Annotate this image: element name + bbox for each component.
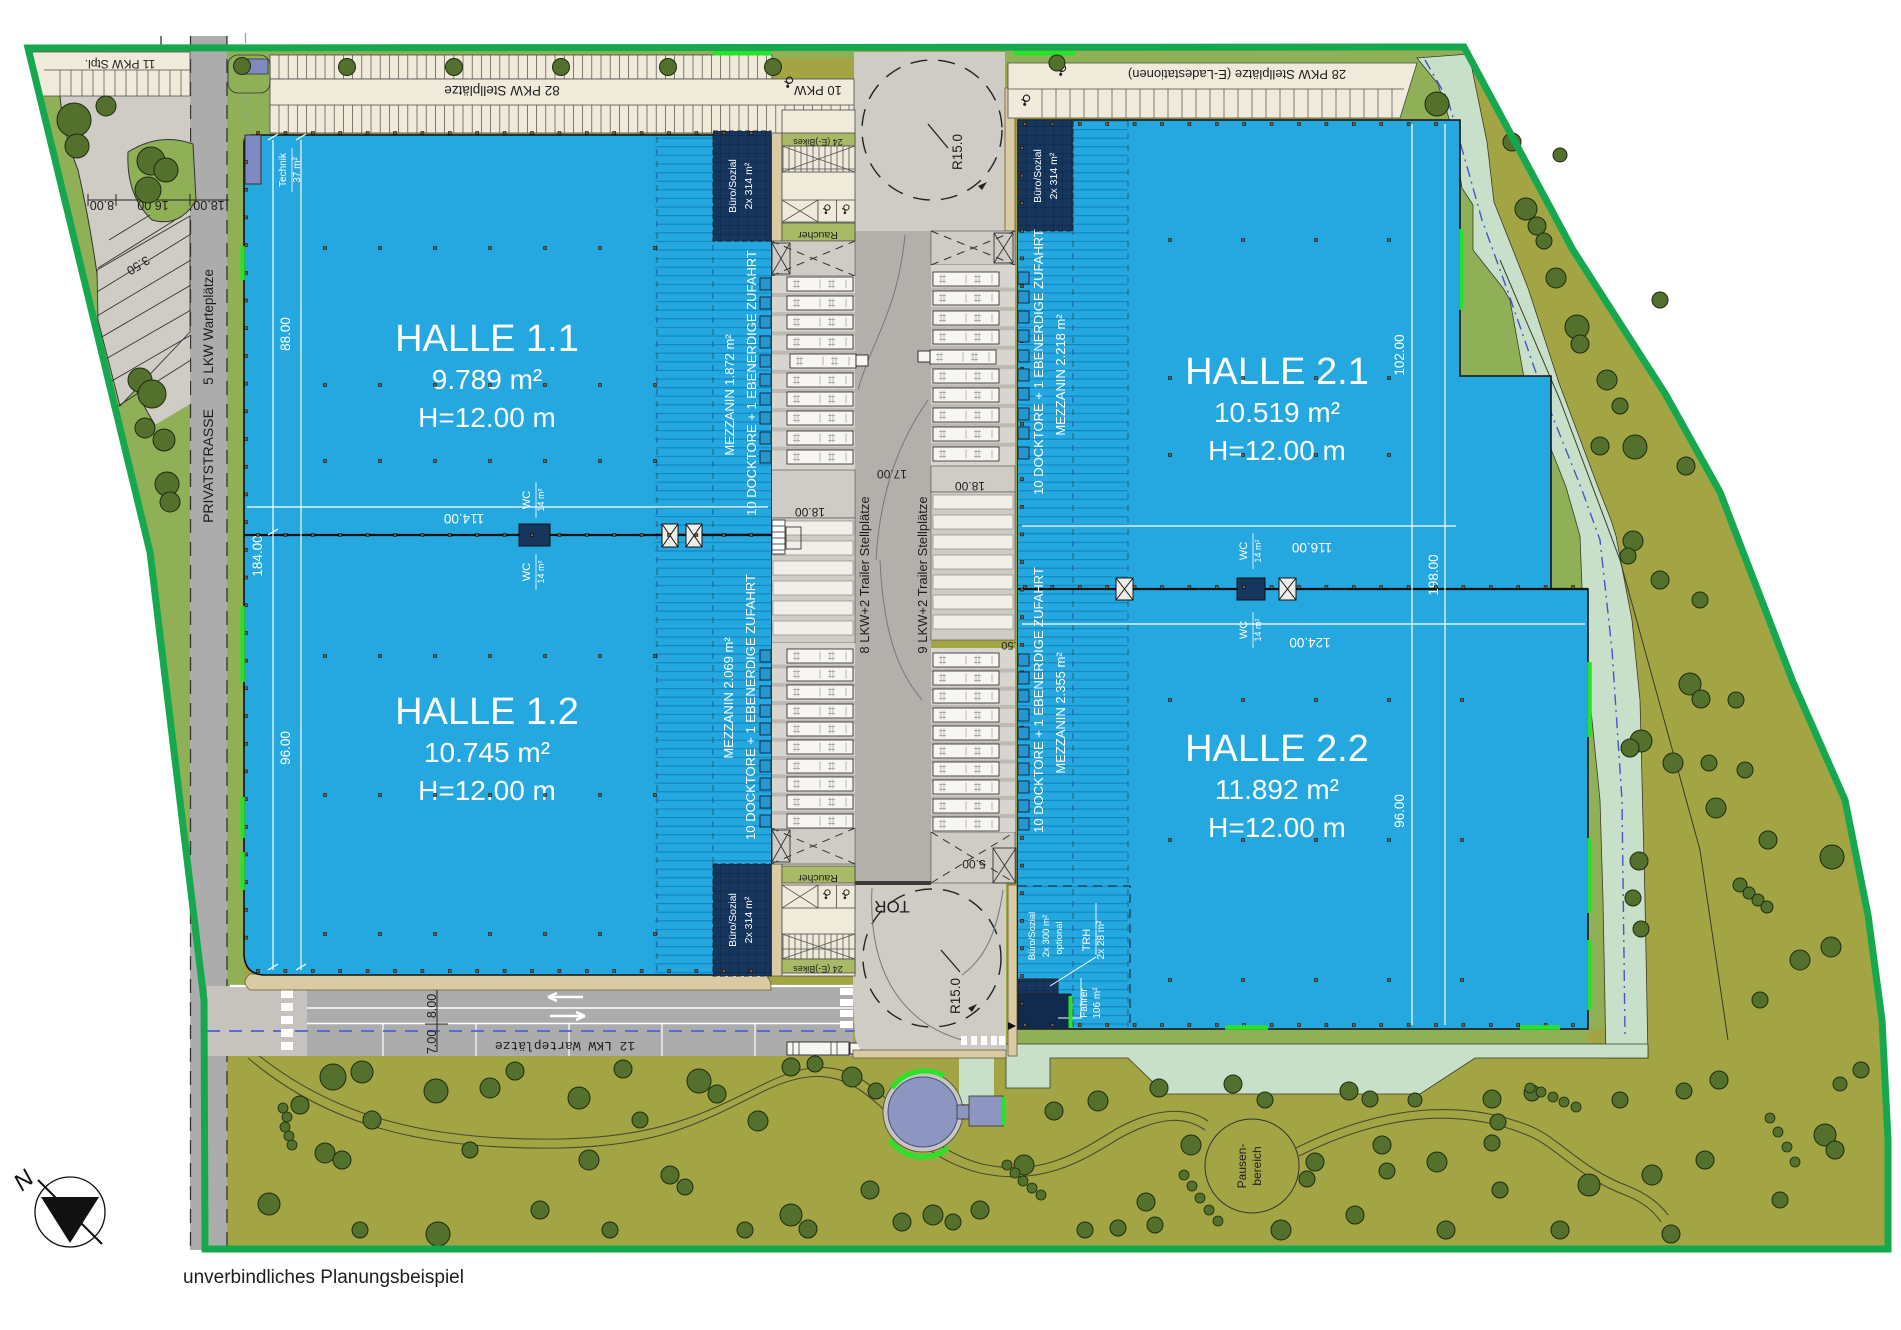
svg-text:10.745 m²: 10.745 m² xyxy=(424,737,550,768)
svg-text:9.789 m²: 9.789 m² xyxy=(432,364,543,395)
svg-text:Büro/Sozial: Büro/Sozial xyxy=(727,893,739,947)
svg-text:5 LKW Warteplätze: 5 LKW Warteplätze xyxy=(201,269,216,385)
svg-text:R15.0: R15.0 xyxy=(950,134,965,170)
svg-text:5.00: 5.00 xyxy=(962,857,986,871)
svg-text:82 PKW Stellplätze: 82 PKW Stellplätze xyxy=(444,83,560,98)
svg-text:H=12.00 m: H=12.00 m xyxy=(418,775,556,806)
svg-text:11.892 m²: 11.892 m² xyxy=(1215,774,1339,805)
svg-text:11 PKW Stpl.: 11 PKW Stpl. xyxy=(85,57,155,71)
svg-text:18.00: 18.00 xyxy=(955,479,985,493)
svg-text:2x 314 m²: 2x 314 m² xyxy=(743,896,755,943)
svg-text:Büro/Sozial: Büro/Sozial xyxy=(1032,149,1044,203)
svg-text:10.519 m²: 10.519 m² xyxy=(1214,397,1340,428)
svg-text:28 PKW Stellplätze (E-Ladestat: 28 PKW Stellplätze (E-Ladestationen) xyxy=(1128,67,1346,82)
svg-text:10 DOCKTORE + 1 EBENERDIGE ZUF: 10 DOCKTORE + 1 EBENERDIGE ZUFAHRT xyxy=(1031,229,1046,495)
svg-text:unverbindliches Planungsbeispi: unverbindliches Planungsbeispiel xyxy=(183,1267,464,1288)
svg-text:Raucher: Raucher xyxy=(798,872,838,884)
svg-text:2x 314 m²: 2x 314 m² xyxy=(743,162,755,209)
svg-text:MEZZANIN 2.069 m²: MEZZANIN 2.069 m² xyxy=(721,637,736,759)
svg-text:TOR: TOR xyxy=(874,897,910,916)
svg-text:14 m²: 14 m² xyxy=(1253,539,1263,562)
svg-text:optional: optional xyxy=(1054,921,1065,954)
svg-text:N: N xyxy=(9,1164,40,1196)
svg-text:10 DOCKTORE + 1 EBENERDIGE ZUF: 10 DOCKTORE + 1 EBENERDIGE ZUFAHRT xyxy=(744,250,759,516)
svg-text:H=12.00 m: H=12.00 m xyxy=(1208,812,1346,843)
svg-text:Technik: Technik xyxy=(278,152,289,187)
svg-text:24 (E-)Bikes: 24 (E-)Bikes xyxy=(793,964,843,974)
svg-text:184.00: 184.00 xyxy=(250,535,265,576)
svg-text:18.00: 18.00 xyxy=(193,198,224,212)
svg-text:8 LKW+2 Trailer Stellplätze: 8 LKW+2 Trailer Stellplätze xyxy=(857,496,872,653)
svg-text:8.00: 8.00 xyxy=(90,198,114,212)
svg-text:10 DOCKTORE + 1 EBENERDIGE ZUF: 10 DOCKTORE + 1 EBENERDIGE ZUFAHRT xyxy=(743,574,758,840)
svg-text:TRH: TRH xyxy=(1081,929,1093,952)
svg-text:PRIVATSTRASSE: PRIVATSTRASSE xyxy=(200,409,216,523)
svg-text:H=12.00 m: H=12.00 m xyxy=(1208,435,1346,466)
svg-text:14 m²: 14 m² xyxy=(536,488,546,511)
svg-text:88.00: 88.00 xyxy=(278,317,293,351)
svg-text:HALLE 2.1: HALLE 2.1 xyxy=(1185,351,1369,393)
svg-text:10 DOCKTORE + 1 EBENERDIGE ZUF: 10 DOCKTORE + 1 EBENERDIGE ZUFAHRT xyxy=(1031,567,1046,833)
svg-text:2x 28 m²: 2x 28 m² xyxy=(1096,920,1107,960)
svg-text:124.00: 124.00 xyxy=(1289,635,1330,650)
svg-text:bereich: bereich xyxy=(1250,1146,1264,1185)
svg-text:106 m²: 106 m² xyxy=(1092,987,1103,1019)
svg-text:18.00: 18.00 xyxy=(795,505,825,519)
svg-text:17.00: 17.00 xyxy=(877,467,907,481)
svg-text:24 (E-)Bikes: 24 (E-)Bikes xyxy=(793,137,843,147)
svg-text:MEZZANIN 1.872 m²: MEZZANIN 1.872 m² xyxy=(722,334,737,456)
svg-text:96.00: 96.00 xyxy=(278,731,293,765)
svg-text:HALLE 1.2: HALLE 1.2 xyxy=(395,691,579,733)
svg-text:116.00: 116.00 xyxy=(1292,540,1332,555)
svg-text:10 PKW: 10 PKW xyxy=(793,83,841,98)
svg-text:HALLE 2.2: HALLE 2.2 xyxy=(1185,728,1369,770)
svg-text:WC: WC xyxy=(1238,542,1250,560)
svg-text:R15.0: R15.0 xyxy=(948,978,963,1014)
svg-text:Raucher: Raucher xyxy=(798,229,838,241)
svg-text:Büro/Sozial: Büro/Sozial xyxy=(1027,912,1038,961)
svg-text:MEZZANIN 2.218 m²: MEZZANIN 2.218 m² xyxy=(1053,314,1068,436)
svg-text:114.00: 114.00 xyxy=(444,511,484,526)
svg-text:102.00: 102.00 xyxy=(1392,334,1407,375)
svg-text:14 m²: 14 m² xyxy=(536,560,546,583)
svg-text:12 LKW Warteplätze: 12 LKW Warteplätze xyxy=(495,1038,635,1053)
svg-text:96.00: 96.00 xyxy=(1392,794,1407,828)
svg-text:2x 300 m²: 2x 300 m² xyxy=(1041,915,1052,957)
svg-text:H=12.00 m: H=12.00 m xyxy=(418,402,556,433)
svg-text:MEZZANIN 2.355 m²: MEZZANIN 2.355 m² xyxy=(1053,652,1068,774)
svg-text:9 LKW+2 Trailer Stellplätze: 9 LKW+2 Trailer Stellplätze xyxy=(915,496,930,653)
svg-text:14 m²: 14 m² xyxy=(1253,618,1263,641)
svg-text:198.00: 198.00 xyxy=(1426,554,1441,595)
svg-text:Pausen-: Pausen- xyxy=(1235,1144,1249,1189)
svg-text:Büro/Sozial: Büro/Sozial xyxy=(727,159,739,213)
svg-text:WC: WC xyxy=(521,563,533,581)
svg-text:HALLE 1.1: HALLE 1.1 xyxy=(395,318,579,360)
svg-text:2x 314 m²: 2x 314 m² xyxy=(1048,152,1060,199)
